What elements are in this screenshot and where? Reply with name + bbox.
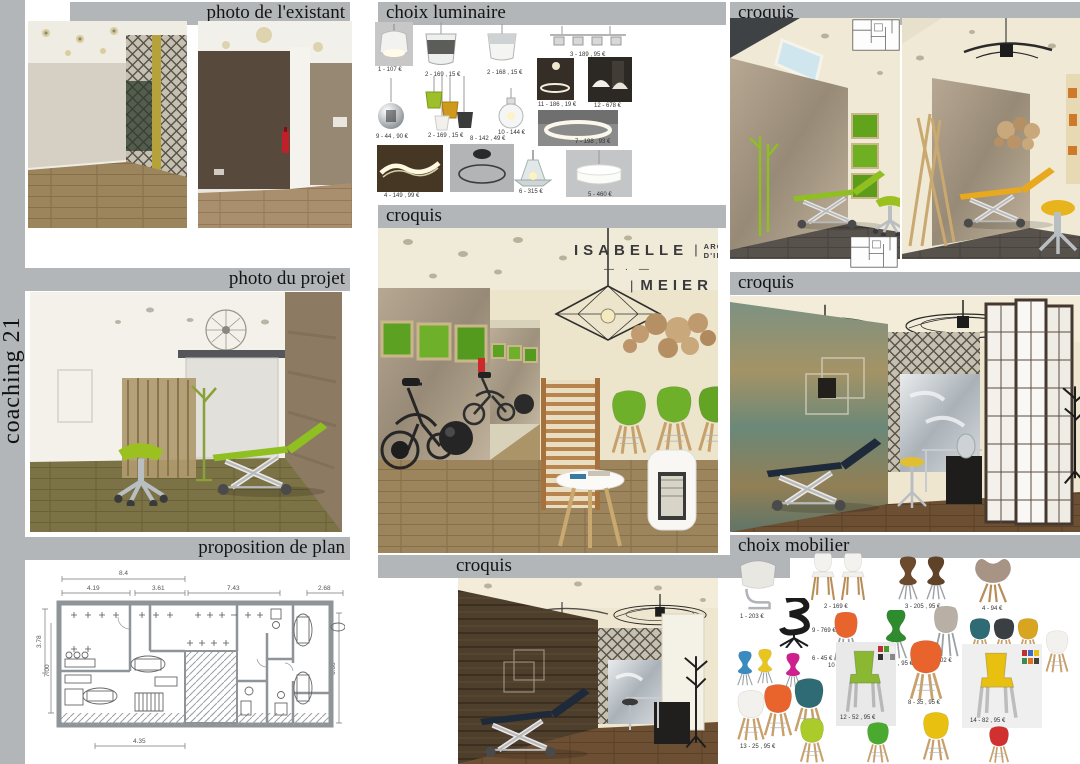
rail-spots-lamp-image <box>548 26 628 50</box>
existing-room-1-image <box>28 21 187 228</box>
pendant-glass-lamp-image <box>420 22 462 70</box>
luminaire-item <box>480 24 524 68</box>
chrome-ball-lamp-image <box>376 78 406 132</box>
croquis-render-yellow-room <box>902 18 1080 259</box>
header-croquis-mid-right: croquis <box>730 272 1080 295</box>
small-green-chair-image <box>862 722 894 764</box>
price-caption: 2 - 169 , 15 € <box>428 133 463 140</box>
luminaire-item <box>376 78 406 132</box>
mobilier-item <box>862 722 894 764</box>
header-label: photo du projet <box>229 268 345 289</box>
price-caption: 5 - 460 € <box>588 192 612 199</box>
glass-bubble-lamp-image <box>497 88 525 130</box>
wood-chair-pair-image <box>806 552 872 602</box>
floor-plan-drawing: 8.4 4.19 3.61 7.43 2.68 3.78 7.00 6.60 4… <box>35 563 345 760</box>
mobilier-item <box>806 552 872 602</box>
croquis-render-navy-room <box>730 296 1080 532</box>
header-label: choix luminaire <box>386 2 506 23</box>
pendant-shade-lamp-image <box>480 24 524 68</box>
price-caption: 12 - 52 , 95 € <box>840 715 875 722</box>
dim-label: 7.00 <box>44 664 51 677</box>
header-label: photo de l'existant <box>206 2 345 23</box>
designer-logo: ISABELLE | ARCHITECTED'INTÉRIEUR — · — |… <box>574 242 714 294</box>
header-proposition-plan: proposition de plan <box>0 537 350 560</box>
luminaire-item <box>497 88 525 130</box>
luminaire-item <box>513 150 553 190</box>
header-label: croquis <box>738 272 794 293</box>
orange-tulip-chair-image <box>903 640 949 702</box>
dim-label: 7.43 <box>227 585 240 592</box>
price-caption: 11 - 186 , 19 € <box>538 102 576 109</box>
logo-name-last: MEIER <box>640 277 713 294</box>
croquis-render-green-room <box>730 18 900 259</box>
small-red-chair-image <box>984 726 1014 764</box>
luminaire-item <box>375 22 413 66</box>
price-caption: 14 - 82 , 95 € <box>970 718 1005 725</box>
dome-duo-lamp-image <box>588 57 632 102</box>
dim-label: 2.68 <box>318 585 331 592</box>
navy-room-render-image <box>730 296 1080 532</box>
mobilier-item <box>836 642 896 726</box>
small-yellow-chair-image <box>918 712 954 762</box>
dim-label: 4.19 <box>87 585 100 592</box>
header-croquis-center: croquis <box>378 205 726 228</box>
ring-lamp-dark-image <box>537 58 574 100</box>
mobilier-item <box>772 598 818 648</box>
swan-chair-image <box>972 556 1014 604</box>
project-title: coaching 21 <box>0 300 27 460</box>
project-photo-render <box>30 292 342 532</box>
luminaire-item <box>566 150 632 197</box>
price-caption: 1 - 107 € <box>378 67 402 74</box>
z-chair-image <box>772 598 818 648</box>
walnut-chair-pair-image <box>893 556 955 602</box>
header-label: croquis <box>456 555 512 576</box>
plan-inset-small <box>845 236 903 273</box>
luminaire-item <box>537 58 574 100</box>
scandi-chair-group-image <box>733 678 833 764</box>
logo-subtitle: ARCHITECTED'INTÉRIEUR <box>704 242 718 260</box>
logo-bar2: | <box>630 278 633 293</box>
price-caption: 2 - 169 € <box>824 604 848 611</box>
green-stack-chair-image <box>836 642 896 726</box>
presentation-board: coaching 21 photo de l'existant <box>0 0 1080 764</box>
mobilier-item <box>893 556 955 602</box>
yellow-stack-chair-image <box>962 644 1042 728</box>
dim-label: 8.4 <box>119 570 128 577</box>
croquis-render-gym: ISABELLE | ARCHITECTED'INTÉRIEUR — · — |… <box>378 228 718 553</box>
croquis-render-wood-wall-room <box>458 578 718 764</box>
multi-colour-pendants-image <box>420 76 478 131</box>
dim-label: 3.61 <box>152 585 165 592</box>
price-caption: 1 - 203 € <box>740 614 764 621</box>
luminaire-item <box>420 76 478 131</box>
cone-glass-lamp-image <box>513 150 553 190</box>
price-caption: 6 - 45 € <box>812 656 832 663</box>
logo-name-first: ISABELLE <box>574 242 688 259</box>
luminaire-item <box>450 144 514 192</box>
price-caption: 4 - 149 , 99 € <box>384 193 419 200</box>
mobilier-item <box>733 678 833 764</box>
mobilier-item <box>984 726 1014 764</box>
price-caption: 8 - 142 , 49 € <box>470 136 505 143</box>
price-caption: 7 - 198 , 93 € <box>575 139 610 146</box>
price-caption: 2 - 168 , 15 € <box>487 70 522 77</box>
ceiling-ring-lamp-image <box>450 144 514 192</box>
luminaire-item <box>420 22 462 70</box>
luminaire-item <box>548 26 628 50</box>
green-room-render-image <box>730 18 900 259</box>
wood-wall-room-render-image <box>458 578 718 764</box>
price-caption: 9 - 44 , 90 € <box>376 134 408 141</box>
mobilier-item <box>903 640 949 702</box>
mobilier-item <box>918 712 954 762</box>
price-caption: 12 - 678 € <box>594 103 621 110</box>
pendant-dome-lamp-image <box>375 22 413 66</box>
dim-label: 3.78 <box>36 635 43 648</box>
mobilier-item <box>972 556 1014 604</box>
floor-plan: 8.4 4.19 3.61 7.43 2.68 3.78 7.00 6.60 4… <box>35 563 345 764</box>
yellow-room-render-image <box>902 18 1080 259</box>
price-caption: 4 - 94 € <box>982 606 1002 613</box>
header-photo-projet: photo du projet <box>0 268 350 291</box>
existing-room-2-image <box>198 21 352 228</box>
header-label: croquis <box>386 205 442 226</box>
luminaire-item <box>588 57 632 102</box>
header-choix-mobilier: choix mobilier <box>730 535 1080 558</box>
header-croquis-bottom: croquis <box>378 555 790 578</box>
wave-lamp-image <box>377 145 443 192</box>
price-caption: 8 - 35 , 95 € <box>908 700 940 707</box>
price-caption: 13 - 25 , 95 € <box>740 744 775 751</box>
logo-divider: — · — <box>604 264 714 275</box>
header-label: proposition de plan <box>198 537 345 558</box>
logo-bar: | <box>694 242 697 257</box>
price-caption: 6 - 315 € <box>519 189 543 196</box>
project-render-image <box>30 292 342 532</box>
drum-lamp-image <box>566 150 632 197</box>
mobilier-item <box>962 644 1042 728</box>
mini-plan-image <box>845 236 903 268</box>
existing-photo-2 <box>198 21 352 228</box>
existing-photo-1 <box>28 21 187 228</box>
luminaire-item <box>377 145 443 192</box>
dim-label: 4.35 <box>133 738 146 745</box>
